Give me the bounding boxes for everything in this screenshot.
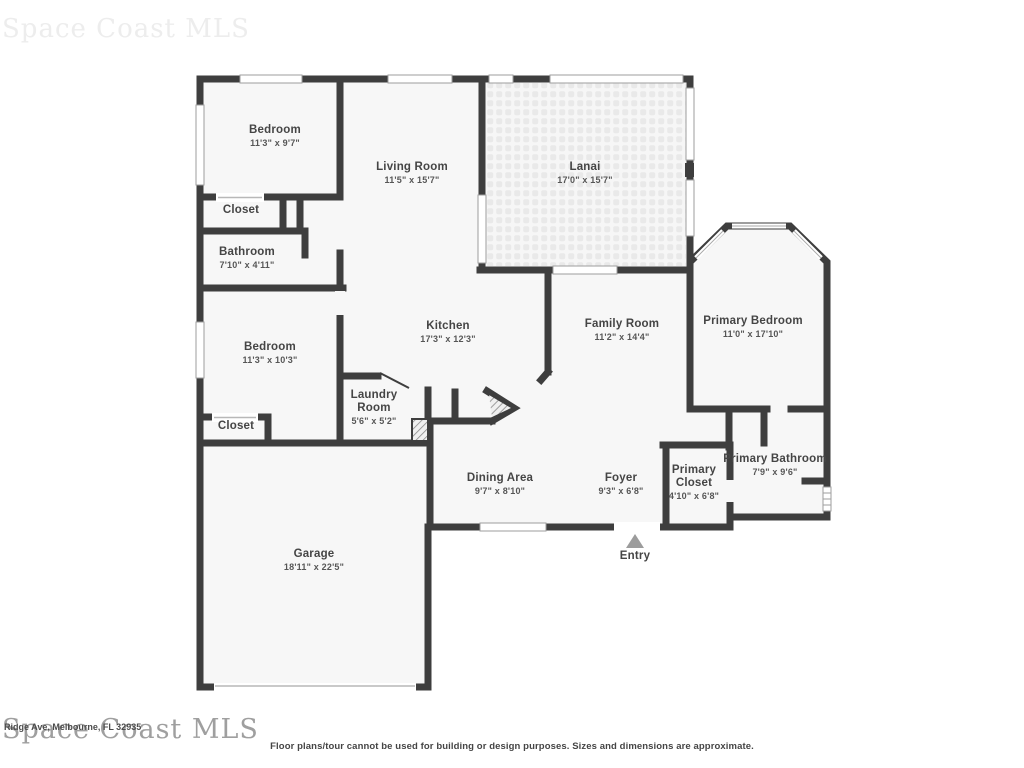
lanai-tile-floor bbox=[486, 83, 686, 266]
garage-door bbox=[214, 683, 416, 691]
entry-label: Entry bbox=[620, 550, 650, 562]
utility-hatch bbox=[412, 419, 428, 441]
watermark-address: Ridge Ave, Melbourne, FL 32935 bbox=[4, 722, 141, 732]
lanai-wall-post bbox=[685, 163, 694, 177]
floor-plan-drawing bbox=[0, 0, 1024, 768]
disclaimer-text: Floor plans/tour cannot be used for buil… bbox=[0, 741, 1024, 752]
entry-arrow-icon bbox=[626, 534, 644, 548]
floor-plan-page: Space Coast MLS bbox=[0, 0, 1024, 768]
entry-opening bbox=[614, 522, 660, 533]
